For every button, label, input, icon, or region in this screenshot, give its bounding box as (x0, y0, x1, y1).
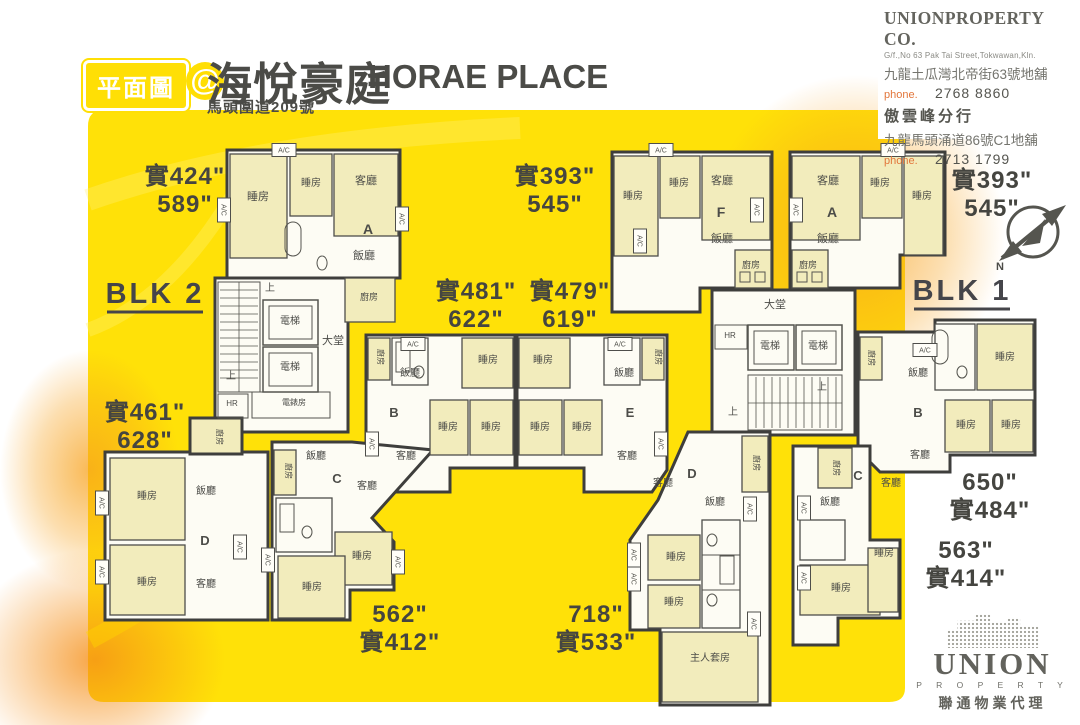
agency-address-en: G/f.,No 63 Pak Tai Street,Tokwawan,Kln. (884, 51, 1080, 60)
room-label: 飯廳 (908, 366, 928, 379)
room-label: 廚房 (799, 259, 817, 270)
blk2-core-outline (215, 278, 348, 432)
block-label: BLK 1 (913, 275, 1012, 307)
room-label: 睡房 (1001, 418, 1021, 431)
room-label: 睡房 (137, 489, 157, 502)
page-title-english: HORAE PLACE (368, 58, 608, 96)
room-label: 睡房 (956, 418, 976, 431)
ac-unit-label: A/C (744, 497, 757, 521)
room-label: HR (724, 331, 736, 340)
ac-unit-label: A/C (798, 496, 811, 520)
phone-number: 2713 1799 (935, 151, 1010, 167)
room-label: 睡房 (481, 420, 501, 433)
svg-text:A/C: A/C (800, 502, 807, 514)
room-label: 睡房 (666, 550, 686, 563)
svg-text:A/C: A/C (753, 204, 760, 216)
ac-unit-label: A/C (790, 198, 803, 222)
svg-text:A/C: A/C (220, 204, 227, 216)
ac-unit-label: A/C (396, 207, 409, 231)
area-label-blk2-B: 622" (448, 306, 503, 333)
room-label: 上 (817, 381, 827, 393)
room-label: 廚房 (752, 455, 762, 471)
room-label: 電梯 (808, 339, 828, 352)
room-label: 客廳 (653, 476, 673, 489)
room-label: 睡房 (664, 595, 684, 608)
ac-unit-label: A/C (655, 432, 668, 456)
room-label: 客廳 (396, 449, 416, 462)
room-label: 上 (728, 406, 738, 418)
ac-unit-label: A/C (218, 198, 231, 222)
ac-unit-label: A/C (649, 144, 673, 157)
unit-letter: B (913, 405, 922, 420)
ac-unit-label: A/C (401, 338, 425, 351)
svg-text:A/C: A/C (98, 497, 105, 509)
room-label: 大堂 (322, 333, 344, 347)
phone-number: 2768 8860 (935, 85, 1010, 101)
branch-name: 傲雲峰分行 (884, 105, 1080, 126)
svg-text:A/C: A/C (655, 148, 667, 155)
room-label: 睡房 (870, 176, 890, 189)
room-label: 大堂 (764, 297, 786, 311)
svg-text:A/C: A/C (636, 235, 643, 247)
compass-north-label: N (996, 261, 1004, 273)
room-label: 廚房 (215, 429, 225, 445)
room-label: 睡房 (247, 190, 269, 203)
room-label: 睡房 (352, 549, 372, 562)
logo-building-icon (947, 614, 1039, 648)
room-label: 廚房 (284, 463, 294, 479)
ac-unit-label: A/C (262, 548, 275, 572)
area-label-blk1-B: 650" (962, 469, 1017, 496)
room-label: 電梯 (280, 314, 300, 327)
unit-letter: F (717, 204, 726, 220)
svg-text:A/C: A/C (398, 213, 405, 225)
ac-unit-label: A/C (748, 612, 761, 636)
room-label: 睡房 (995, 350, 1015, 363)
agency-phone-row: phone. 2768 8860 (884, 85, 1080, 101)
svg-text:A/C: A/C (278, 148, 290, 155)
union-property-logo: UNION P R O P E R T Y 聯通物業代理 (905, 600, 1080, 725)
svg-text:A/C: A/C (614, 342, 626, 349)
ac-unit-label: A/C (96, 491, 109, 515)
ac-unit-label: A/C (392, 550, 405, 574)
ac-unit-label: A/C (366, 432, 379, 456)
room-label: 飯廳 (711, 231, 733, 245)
room-label: 飯廳 (614, 366, 634, 379)
logo-property-text: P R O P E R T Y (916, 680, 1069, 690)
svg-text:A/C: A/C (630, 573, 637, 585)
room-label: 廚房 (360, 291, 378, 302)
room-label: 客廳 (617, 449, 637, 462)
room-label: 睡房 (874, 546, 894, 559)
room-label: 客廳 (817, 173, 839, 187)
area-label-blk1-C: 實414" (926, 564, 1006, 592)
svg-text:A/C: A/C (630, 549, 637, 561)
room-label: 飯廳 (817, 231, 839, 245)
room-label: 睡房 (533, 353, 553, 366)
area-label-blk1-E: 619" (542, 306, 597, 333)
svg-text:A/C: A/C (800, 572, 807, 584)
svg-text:A/C: A/C (407, 342, 419, 349)
unit-letter: B (389, 405, 398, 420)
room-label: 睡房 (831, 581, 851, 594)
room-label: 睡房 (572, 420, 592, 433)
room-label: 廚房 (742, 259, 760, 270)
phone-label: phone. (884, 155, 918, 167)
unit-letter: E (626, 405, 635, 420)
area-label-blk1-D: 718" (568, 601, 623, 628)
room-label: 睡房 (669, 176, 689, 189)
room-label: 睡房 (137, 575, 157, 588)
agency-contact-card: UNIONPROPERTY CO. G/f.,No 63 Pak Tai Str… (878, 4, 1080, 139)
room-label: 廚房 (832, 460, 842, 476)
area-label-blk1-E: 實479" (530, 277, 610, 305)
room-label: 廚房 (654, 349, 664, 365)
room-label: 廚房 (867, 350, 877, 366)
room-label: 睡房 (301, 176, 321, 189)
room-label: 睡房 (530, 420, 550, 433)
room-label: 客廳 (355, 173, 377, 187)
ac-unit-label: A/C (798, 566, 811, 590)
unit-letter: D (687, 466, 696, 481)
flyer-page: N 睡房睡房客廳A飯廳廚房A/CA/CA/C上電梯電梯大堂上HR電錶房廚房A/C… (0, 0, 1080, 725)
agency-address-cn: 九龍土瓜灣北帝街63號地舖 (884, 63, 1080, 83)
room-label: 睡房 (912, 189, 932, 202)
room-label: 客廳 (881, 476, 901, 489)
area-label-blk1-F: 545" (527, 191, 582, 218)
room-label: 上 (265, 282, 275, 294)
agency-name: UNIONPROPERTY CO. (884, 8, 1080, 50)
room-label: 廚房 (376, 349, 386, 365)
ac-unit-label: A/C (913, 344, 937, 357)
area-label-blk2-D: 實461" (105, 398, 185, 426)
ac-unit-label: A/C (608, 338, 632, 351)
room-label: 客廳 (357, 479, 377, 492)
area-label-blk2-C: 562" (372, 601, 427, 628)
room-label: 客廳 (711, 173, 733, 187)
ac-unit-label: A/C (272, 144, 296, 157)
block-label: BLK 2 (106, 278, 205, 310)
room-label: 飯廳 (196, 484, 216, 497)
area-label-blk2-A: 實424" (145, 162, 225, 190)
ac-unit-label: A/C (234, 535, 247, 559)
area-label-blk1-C: 563" (938, 537, 993, 564)
area-label-blk1-F: 實393" (515, 162, 595, 190)
area-label-blk1-D: 實533" (556, 628, 636, 656)
room-label: 上 (226, 370, 236, 382)
room-label: HR (226, 399, 238, 408)
room-label: 客廳 (910, 448, 930, 461)
property-address: 馬頭圍道209號 (207, 96, 315, 117)
unit-letter: A (827, 204, 837, 220)
area-label-blk2-A: 589" (157, 191, 212, 218)
svg-text:A/C: A/C (919, 348, 931, 355)
area-label-blk1-B: 實484" (950, 496, 1030, 524)
room-label: 飯廳 (820, 495, 840, 508)
svg-text:A/C: A/C (264, 554, 271, 566)
unit-letter: A (363, 221, 373, 237)
room-label: 睡房 (478, 353, 498, 366)
ac-unit-label: A/C (634, 229, 647, 253)
room-label: 電梯 (760, 339, 780, 352)
ac-unit-label: A/C (96, 560, 109, 584)
header: 平面圖 @ 海悅豪庭 HORAE PLACE 馬頭圍道209號 (0, 0, 880, 130)
branch-address: 九龍馬頭涌道86號C1地舖 (884, 129, 1080, 149)
ac-unit-label: A/C (751, 198, 764, 222)
area-label-blk2-B: 實481" (436, 277, 516, 305)
logo-union-text: UNION (933, 648, 1051, 679)
room-label: 電錶房 (282, 397, 306, 407)
svg-text:A/C: A/C (368, 438, 375, 450)
room-label: 睡房 (302, 580, 322, 593)
room-label: 飯廳 (306, 449, 326, 462)
svg-text:A/C: A/C (98, 566, 105, 578)
room-label: 睡房 (623, 189, 643, 202)
svg-text:A/C: A/C (236, 541, 243, 553)
branch-phone-row: phone. 2713 1799 (884, 151, 1080, 167)
room-label: 電梯 (280, 360, 300, 373)
area-label-blk2-D: 628" (117, 427, 172, 454)
area-label-blk2-C: 實412" (360, 628, 440, 656)
ac-unit-label: A/C (628, 543, 641, 567)
room-label: 主人套房 (690, 651, 730, 664)
svg-text:A/C: A/C (792, 204, 799, 216)
area-label-blk1-A: 實393" (952, 166, 1032, 194)
svg-text:A/C: A/C (394, 556, 401, 568)
unit-letter: D (200, 533, 209, 548)
room-label: 飯廳 (353, 248, 375, 262)
ac-unit-label: A/C (628, 567, 641, 591)
svg-text:A/C: A/C (750, 618, 757, 630)
room-label: 飯廳 (705, 495, 725, 508)
room-label: 睡房 (438, 420, 458, 433)
unit-letter: C (332, 471, 342, 486)
unit-letter: C (853, 468, 863, 483)
room-label: 飯廳 (400, 366, 420, 379)
logo-chinese-text: 聯通物業代理 (939, 693, 1047, 713)
svg-text:A/C: A/C (746, 503, 753, 515)
plan-tag-badge: 平面圖 (83, 60, 189, 111)
svg-text:A/C: A/C (657, 438, 664, 450)
room-label: 客廳 (196, 577, 216, 590)
phone-label: phone. (884, 89, 918, 101)
area-label-blk1-A: 545" (964, 195, 1019, 222)
